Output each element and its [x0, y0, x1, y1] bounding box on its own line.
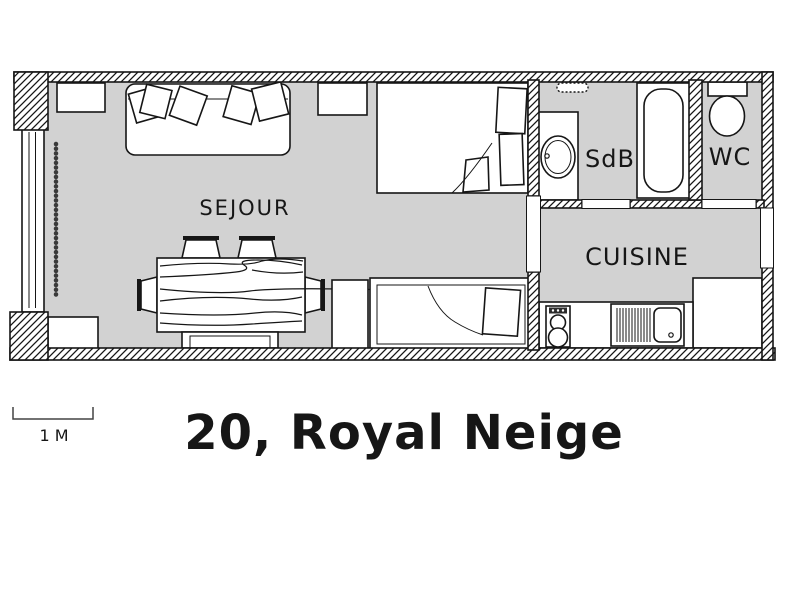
washbasin-icon — [541, 136, 575, 178]
wc-label: WC — [709, 143, 752, 171]
wall-top — [14, 72, 773, 82]
wall-divider-vertical-bottom — [528, 272, 539, 350]
single-bed — [332, 278, 532, 350]
bench-icon — [182, 332, 278, 348]
toilet-icon — [710, 96, 745, 136]
page-title: 20, Royal Neige — [184, 405, 624, 461]
door-opening-wc — [702, 200, 756, 209]
burner-icon — [549, 328, 568, 347]
shelf-icon — [48, 317, 98, 350]
stove-knob — [552, 309, 554, 311]
chair-icon — [305, 277, 321, 313]
nightstand-icon — [332, 280, 368, 350]
door-opening-entry — [761, 208, 774, 268]
stove-knob — [562, 309, 564, 311]
sdb-label: SdB — [585, 145, 635, 173]
chair-icon — [182, 240, 220, 258]
double-bed — [377, 83, 528, 193]
pillow-icon — [482, 288, 520, 336]
kitchen-sink-icon — [654, 308, 681, 342]
kitchen-counter-icon — [693, 278, 762, 348]
blanket-fold — [463, 157, 489, 192]
pillow-icon — [499, 134, 524, 186]
wall-divider-vertical-top — [528, 80, 539, 196]
wall-bottom — [10, 348, 775, 360]
sofa — [126, 82, 290, 155]
stove-knob — [557, 309, 559, 311]
wall-sdb-bottom — [539, 200, 582, 208]
scale-bar: 1 M — [13, 407, 93, 445]
door-opening-sdb — [582, 200, 630, 209]
wall-wc-bottom — [756, 200, 764, 208]
wall-sdb-wc-divider — [689, 80, 702, 200]
scale-bar-label: 1 M — [39, 426, 68, 445]
sejour-label: SEJOUR — [199, 196, 290, 220]
cuisine-label: CUISINE — [585, 243, 689, 271]
chair-icon — [141, 277, 157, 313]
bathtub-basin — [644, 89, 683, 192]
nightstand-icon — [318, 83, 367, 115]
floorplan-svg: SEJOUR SdB WC CUISINE 1 M 20, Royal Neig… — [0, 0, 800, 599]
chair-icon — [238, 240, 276, 258]
toilet-tank — [708, 82, 747, 96]
wall-left-top-block — [14, 72, 48, 130]
towel-rail-icon — [557, 83, 588, 92]
cabinet-bottom-left — [48, 317, 98, 350]
wall-sdb-bottom — [630, 200, 702, 208]
window-icon — [22, 128, 44, 312]
scale-bar-line — [13, 407, 93, 419]
pillow-icon — [496, 87, 527, 133]
side-table — [318, 83, 367, 115]
door-opening-sejour-cuisine — [527, 196, 541, 272]
shelf-icon — [57, 83, 105, 112]
wall-left-bottom-block — [10, 312, 48, 360]
floorplan-page: SEJOUR SdB WC CUISINE 1 M 20, Royal Neig… — [0, 0, 800, 599]
shelf-top-left — [57, 83, 105, 112]
dining-table-icon — [157, 258, 305, 332]
toilet — [708, 82, 747, 136]
